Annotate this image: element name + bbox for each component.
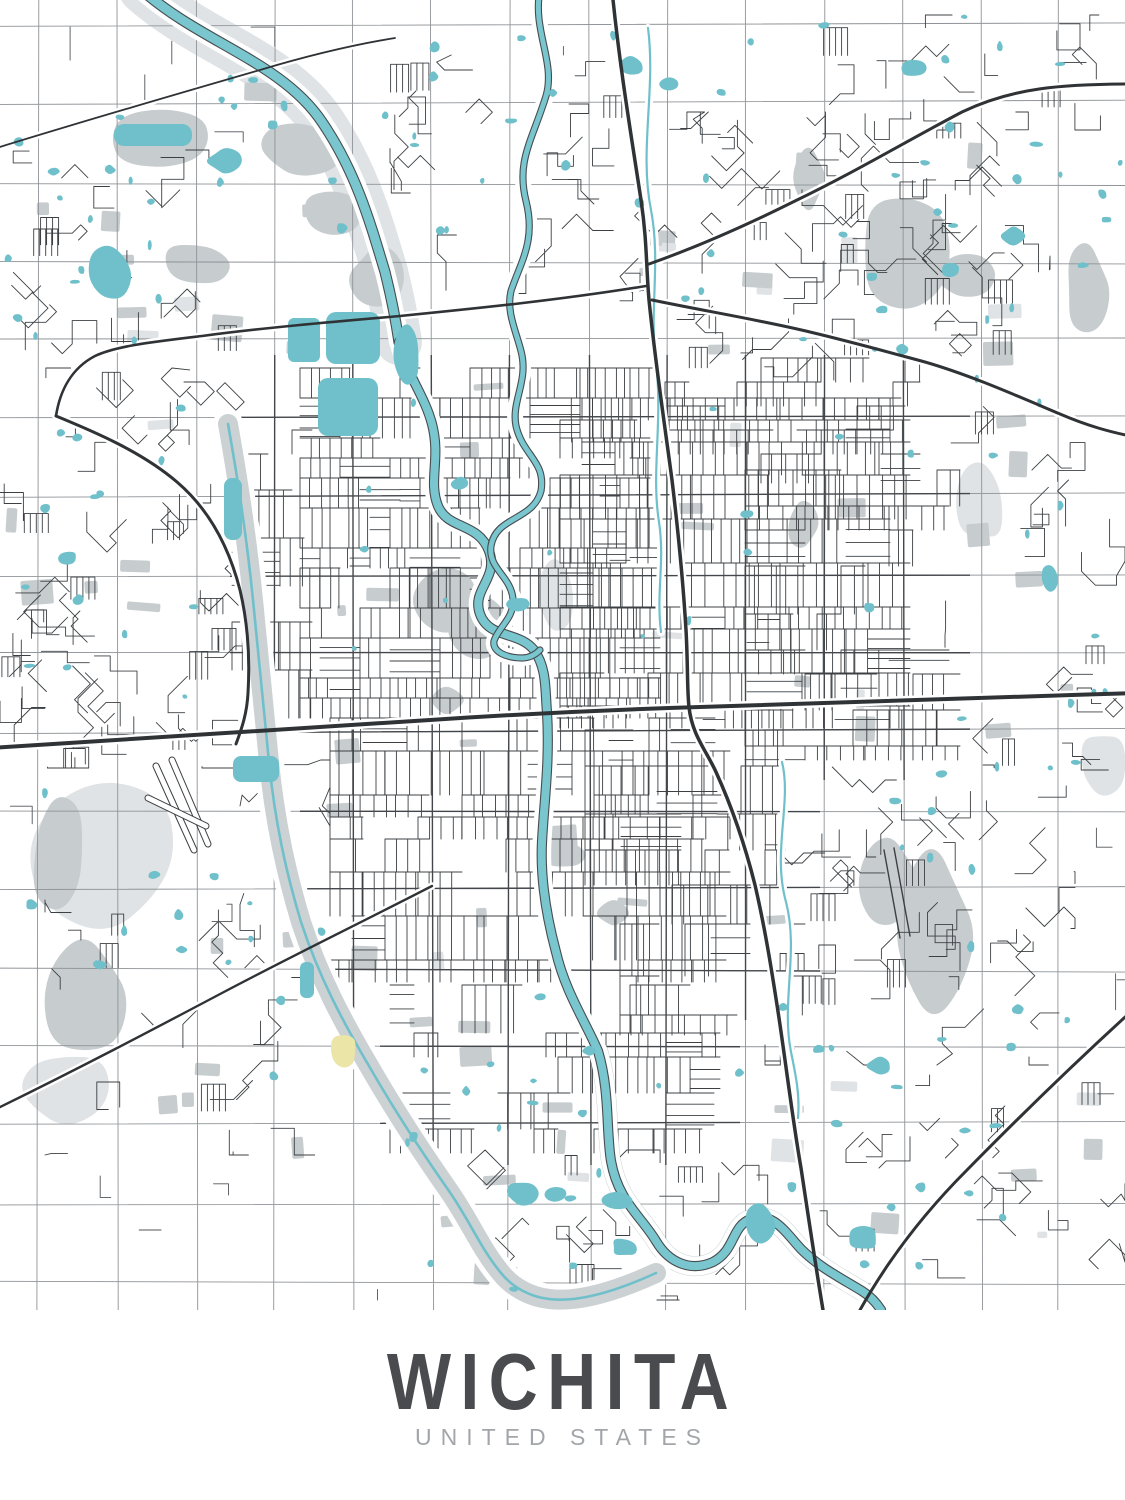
city-title: WICHITA (84, 1336, 1040, 1428)
city-map (0, 0, 1125, 1310)
poster: WICHITA UNITED STATES (0, 0, 1125, 1500)
country-subtitle: UNITED STATES (0, 1424, 1125, 1451)
title-block: WICHITA (0, 1336, 1125, 1428)
